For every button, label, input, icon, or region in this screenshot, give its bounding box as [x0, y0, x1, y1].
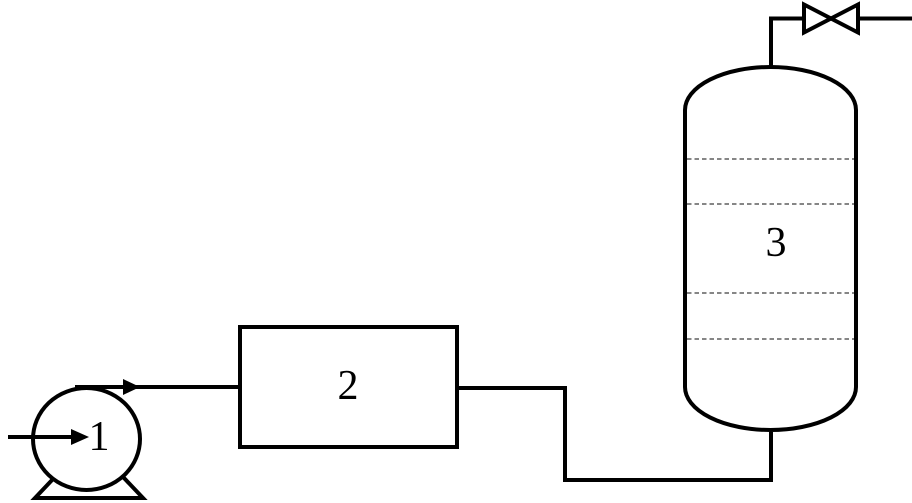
column-label: 3	[766, 220, 787, 266]
process-flow-diagram: 1 2 3	[0, 0, 912, 503]
valve-icon	[804, 5, 858, 33]
valve-right-triangle	[831, 5, 858, 33]
flow-arrow-icon	[123, 379, 140, 395]
diagram-canvas: 1 2 3	[0, 0, 912, 503]
box-unit-label: 2	[338, 363, 359, 409]
column-top-pipe	[771, 19, 804, 69]
pump-label: 1	[89, 414, 110, 460]
